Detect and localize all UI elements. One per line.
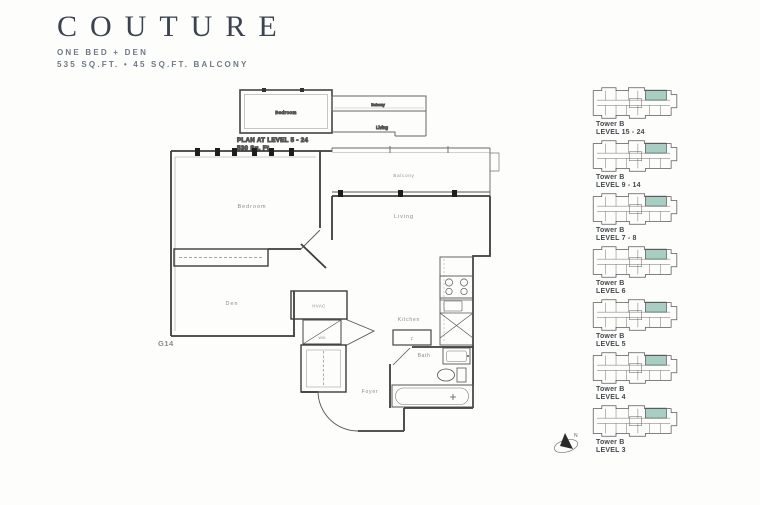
keyplan-column: Tower B LEVEL 15 - 24 Tower B LEVEL 9 - … bbox=[587, 84, 705, 455]
bedroom-label: Bedroom bbox=[238, 204, 267, 210]
keyplan-level: LEVEL 4 bbox=[596, 394, 705, 402]
floor-plan-drawing: Bedroom Balcony Living PLAN AT LEVEL 5 -… bbox=[145, 78, 513, 468]
keyplan-tower: Tower B bbox=[596, 280, 705, 288]
hvac-label: HVAC bbox=[312, 304, 325, 309]
keyplan-highlight-unit bbox=[645, 196, 666, 206]
bath-label: Bath bbox=[418, 353, 431, 359]
keyplan-level-4: Tower B LEVEL 4 bbox=[587, 349, 705, 402]
keyplan-tower: Tower B bbox=[596, 386, 705, 394]
page-title: COUTURE bbox=[57, 10, 290, 44]
kitchen-label: Kitchen bbox=[398, 317, 420, 323]
keyplan-level: LEVEL 6 bbox=[596, 288, 705, 296]
foyer-label: Foyer bbox=[362, 389, 379, 395]
bath-fixtures bbox=[392, 348, 473, 407]
keyplan-highlight-unit bbox=[645, 355, 666, 365]
keyplan-tower: Tower B bbox=[596, 333, 705, 341]
floorplan-sheet: COUTURE ONE BED + DEN 535 SQ.FT. • 45 SQ… bbox=[0, 0, 760, 505]
keyplan-highlight-unit bbox=[645, 249, 666, 259]
fridge-label: F bbox=[411, 337, 414, 342]
keyplan-level: LEVEL 9 - 14 bbox=[596, 182, 705, 190]
keyplan-map-icon bbox=[587, 402, 684, 440]
balcony-label: Balcony bbox=[393, 173, 414, 178]
keyplan-map-icon bbox=[587, 349, 684, 387]
keyplan-level-7-8: Tower B LEVEL 7 - 8 bbox=[587, 190, 705, 243]
header: COUTURE ONE BED + DEN 535 SQ.FT. • 45 SQ… bbox=[57, 10, 290, 69]
keyplan-highlight-unit bbox=[645, 408, 666, 418]
inset-bedroom-label: Bedroom bbox=[275, 110, 296, 115]
keyplan-highlight-unit bbox=[645, 143, 666, 153]
tub-faucet bbox=[450, 394, 456, 400]
kitchen-appliances bbox=[393, 257, 473, 345]
keyplan-map-icon bbox=[587, 84, 684, 122]
area-subtitle: 535 SQ.FT. • 45 SQ.FT. BALCONY bbox=[57, 60, 290, 69]
keyplan-map-icon bbox=[587, 243, 684, 281]
inset-living-label: Living bbox=[376, 125, 388, 130]
inset-plan: Bedroom Balcony Living PLAN AT LEVEL 5 -… bbox=[237, 88, 426, 152]
keyplan-level-5: Tower B LEVEL 5 bbox=[587, 296, 705, 349]
keyplan-level: LEVEL 15 - 24 bbox=[596, 129, 705, 137]
unit-type-subtitle: ONE BED + DEN bbox=[57, 48, 290, 57]
room-labels: Bedroom Living Balcony Den Kitchen Bath … bbox=[158, 173, 430, 395]
keyplan-highlight-unit bbox=[645, 302, 666, 312]
north-label: N bbox=[574, 433, 578, 439]
keyplan-tower: Tower B bbox=[596, 174, 705, 182]
kitchen-sink bbox=[444, 301, 462, 311]
keyplan-tower: Tower B bbox=[596, 121, 705, 129]
inset-balcony-label: Balcony bbox=[371, 103, 385, 107]
keyplan-map-icon bbox=[587, 137, 684, 175]
keyplan-level: LEVEL 7 - 8 bbox=[596, 235, 705, 243]
stove bbox=[440, 276, 473, 298]
pantry-shaft bbox=[440, 313, 473, 338]
inset-caption-line1: PLAN AT LEVEL 5 - 24 bbox=[237, 137, 308, 144]
keyplan-map-icon bbox=[587, 296, 684, 334]
keyplan-map-icon bbox=[587, 190, 684, 228]
north-arrow-icon: N bbox=[548, 428, 588, 462]
keyplan-level-15-24: Tower B LEVEL 15 - 24 bbox=[587, 84, 705, 137]
unit-number-label: G14 bbox=[158, 339, 174, 348]
keyplan-tower: Tower B bbox=[596, 227, 705, 235]
keyplan-level-6: Tower B LEVEL 6 bbox=[587, 243, 705, 296]
keyplan-tower: Tower B bbox=[596, 439, 705, 447]
washer-dryer-label: W/D bbox=[319, 336, 326, 340]
den-label: Den bbox=[226, 301, 239, 307]
keyplan-level-3: Tower B LEVEL 3 bbox=[587, 402, 705, 455]
toilet bbox=[438, 369, 455, 381]
keyplan-level-9-14: Tower B LEVEL 9 - 14 bbox=[587, 137, 705, 190]
keyplan-level: LEVEL 3 bbox=[596, 447, 705, 455]
keyplan-level: LEVEL 5 bbox=[596, 341, 705, 349]
living-label: Living bbox=[394, 214, 414, 220]
keyplan-highlight-unit bbox=[645, 90, 666, 100]
